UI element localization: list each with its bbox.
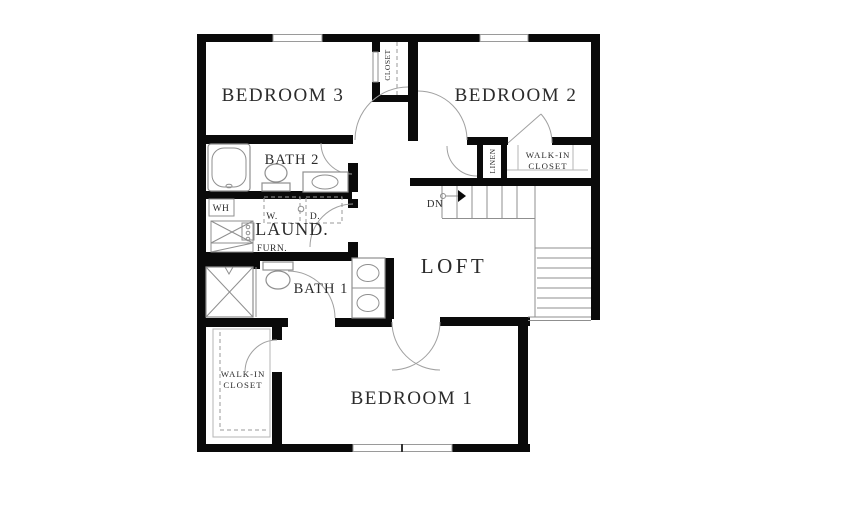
toilet bbox=[262, 164, 290, 191]
stairs-down-label: DN bbox=[427, 199, 443, 210]
dryer-label: D. bbox=[310, 212, 320, 222]
sink-vanity bbox=[303, 172, 348, 192]
floor-plan: BEDROOM 3 BEDROOM 2 BEDROOM 1 LOFT BATH … bbox=[0, 0, 850, 520]
linen-label: LINEN bbox=[488, 148, 497, 173]
shower bbox=[206, 267, 256, 317]
walkin-top-label-line1: WALK-IN bbox=[526, 150, 571, 160]
floor-plan-canvas: BEDROOM 3 BEDROOM 2 BEDROOM 1 LOFT BATH … bbox=[0, 0, 850, 520]
bedroom1-label: BEDROOM 1 bbox=[351, 388, 474, 409]
bath1-label: BATH 1 bbox=[294, 281, 349, 297]
bedroom2-label: BEDROOM 2 bbox=[455, 85, 578, 106]
double-sink-vanity bbox=[352, 258, 385, 318]
bedroom3-label: BEDROOM 3 bbox=[222, 85, 345, 106]
water-heater-label: WH bbox=[213, 204, 230, 214]
laundry-label: LAUND. bbox=[255, 219, 329, 239]
bathtub bbox=[208, 144, 250, 191]
loft-label: LOFT bbox=[421, 254, 488, 278]
bath2-label: BATH 2 bbox=[265, 152, 320, 168]
furnace-label: FURN. bbox=[257, 244, 287, 254]
walkin-bottom-label-line1: WALK-IN bbox=[221, 369, 266, 379]
washer-label: W. bbox=[266, 212, 277, 222]
toilet bbox=[263, 262, 293, 289]
window bbox=[480, 35, 528, 42]
window bbox=[273, 35, 322, 42]
closet-label: CLOSET bbox=[383, 49, 392, 80]
walkin-top-label-line2: CLOSET bbox=[528, 161, 567, 171]
walkin-bottom-label-line2: CLOSET bbox=[223, 380, 262, 390]
